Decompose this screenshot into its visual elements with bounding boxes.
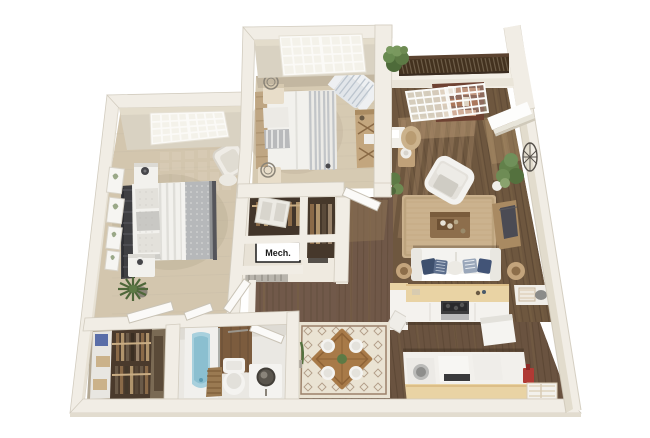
- svg-text:Mech.: Mech.: [265, 248, 291, 258]
